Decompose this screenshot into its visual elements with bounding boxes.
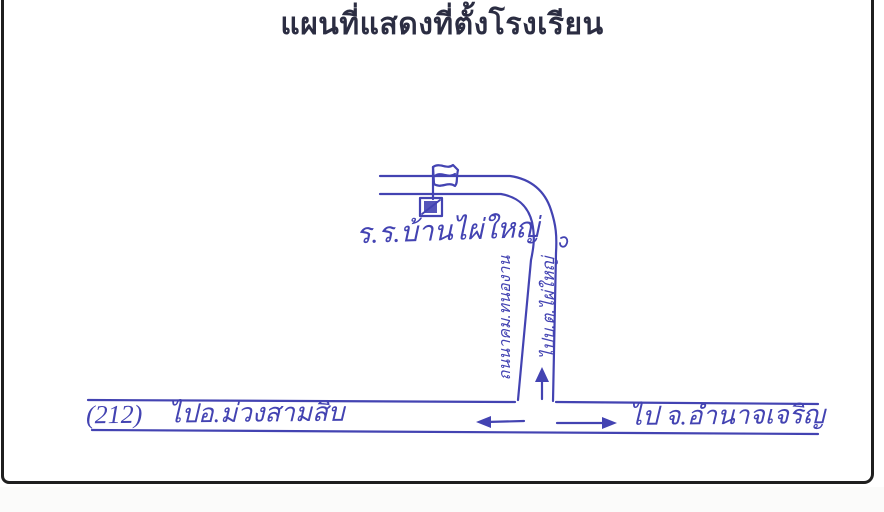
squiggle-mark [560,237,567,247]
west-direction-label: ไปอ.ม่วงสามสิบ [168,400,344,428]
highway-bottom-line [92,430,818,434]
vertical-road-label-right: ไปบ.ต.ไผ่ใหญ่ [540,224,560,392]
left-arrow-shaft [486,421,524,422]
west-road-labels: (212) ไปอ.ม่วงสามสิบ [86,400,345,429]
map-drawing [0,0,884,512]
left-arrow-icon [476,416,491,428]
highway-number-label: (212) [86,402,143,429]
flag-icon [433,165,458,186]
east-direction-label: ไป จ.อำนาจเจริญ [629,402,825,430]
upper-road-outer-line [380,176,556,401]
right-arrow-icon [602,417,617,429]
vertical-road-label-left: ถนนาคม.ทนองาน [498,234,518,402]
